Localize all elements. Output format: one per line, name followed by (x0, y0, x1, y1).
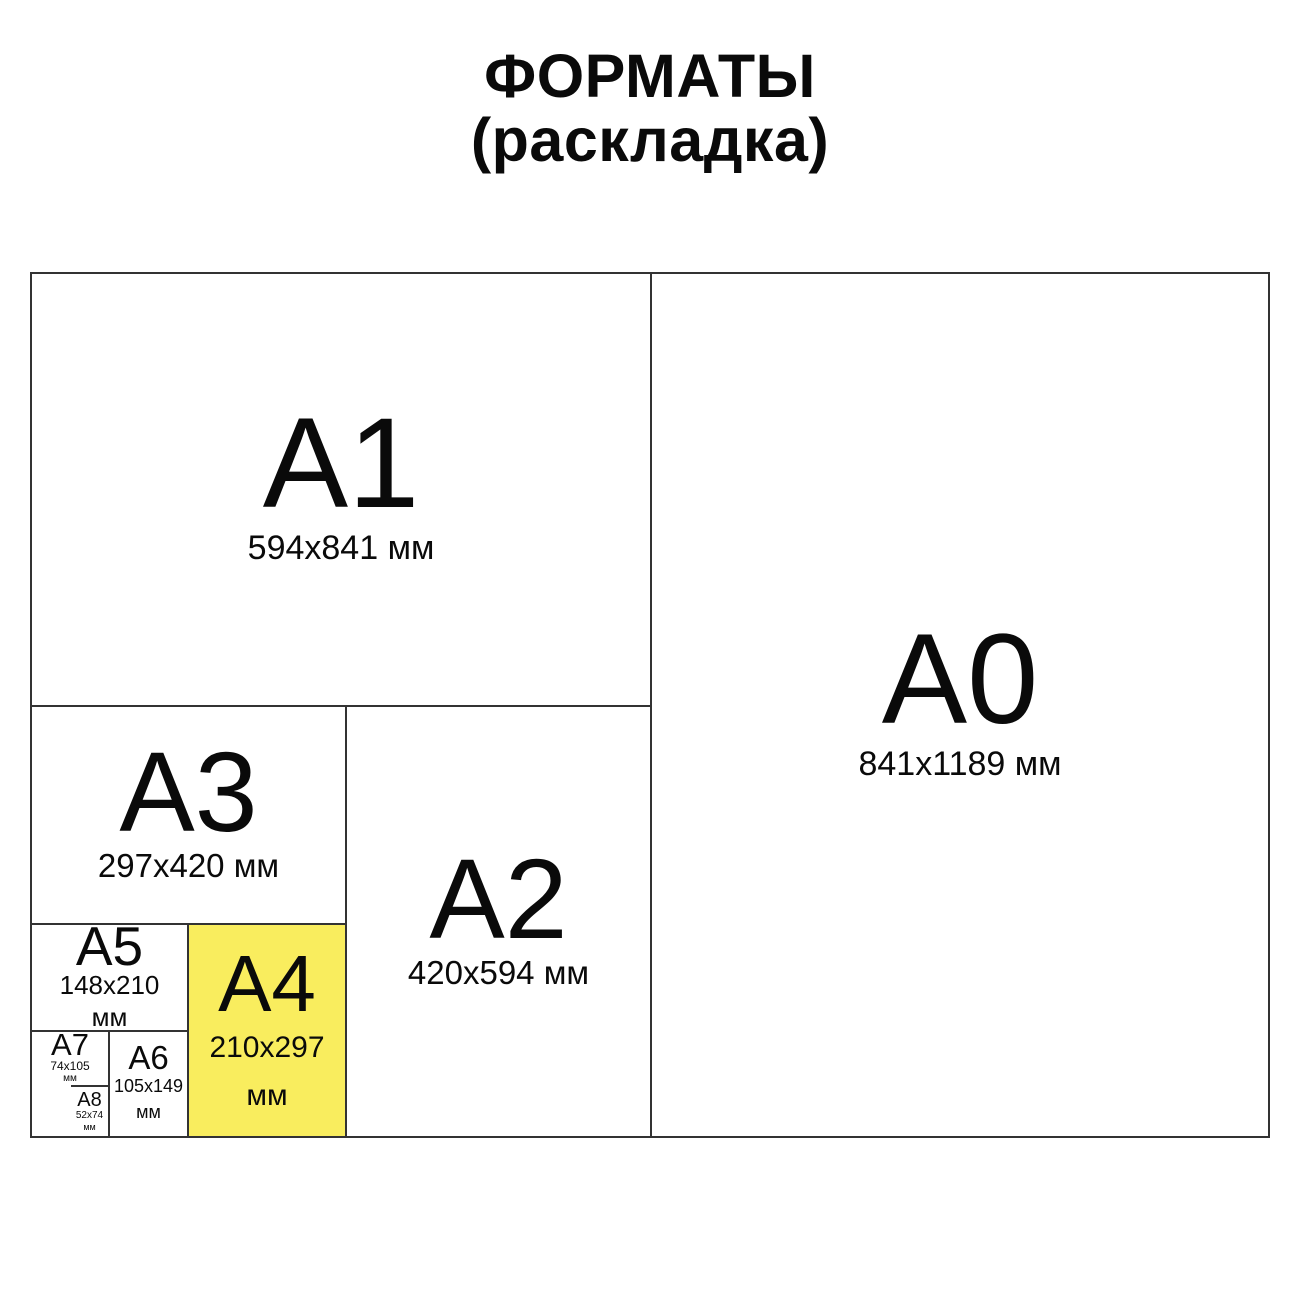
format-label-a8: A8 (77, 1092, 101, 1108)
format-label-a1: A1 (263, 410, 420, 519)
format-dimensions-unit-a7: мм (63, 1074, 77, 1084)
format-box-a3: A3 297x420 мм (30, 705, 347, 925)
format-dimensions-a0: 841x1189 мм (858, 744, 1061, 785)
page-title-line1: ФОРМАТЫ (0, 44, 1300, 108)
format-box-a0: A0 841x1189 мм (650, 272, 1270, 1138)
page-title-line2: (раскладка) (0, 108, 1300, 172)
format-box-a5: A5 148x210 мм (30, 923, 189, 1032)
format-label-a4: A4 (218, 950, 316, 1018)
format-dimensions-a8: 52x74 (76, 1111, 103, 1121)
format-dimensions-a7: 74x105 (50, 1060, 89, 1072)
format-label-a3: A3 (119, 744, 257, 840)
format-label-a7: A7 (51, 1033, 89, 1058)
format-dimensions-unit-a8: мм (83, 1123, 95, 1132)
format-dimensions-a2: 420x594 мм (408, 953, 589, 993)
format-box-a6: A6 105x149 мм (108, 1030, 189, 1138)
format-box-a4-highlighted: A4 210x297 мм (187, 923, 347, 1138)
format-dimensions-unit-a4: мм (246, 1079, 287, 1112)
format-label-a2: A2 (429, 851, 567, 947)
format-dimensions-a6: 105x149 (114, 1077, 183, 1097)
format-box-a2: A2 420x594 мм (345, 705, 652, 1138)
format-dimensions-unit-a5: мм (92, 1004, 128, 1031)
format-box-a8: A8 52x74 мм (69, 1085, 110, 1138)
format-box-a7: A7 74x105 мм (30, 1030, 110, 1087)
format-dimensions-a4: 210x297 (209, 1031, 324, 1064)
format-dimensions-a5: 148x210 (60, 972, 160, 999)
outer-border-filler (30, 1085, 71, 1138)
format-box-a1: A1 594x841 мм (30, 272, 652, 707)
format-dimensions-a1: 594x841 мм (248, 528, 435, 569)
paper-formats-page: ФОРМАТЫ (раскладка) A1 594x841 мм A0 841… (0, 0, 1300, 1300)
format-label-a5: A5 (76, 924, 143, 968)
format-label-a0: A0 (882, 626, 1039, 735)
format-dimensions-a3: 297x420 мм (98, 846, 279, 886)
paper-formats-diagram: A1 594x841 мм A0 841x1189 мм A3 297x420 … (30, 272, 1270, 1138)
format-dimensions-unit-a6: мм (136, 1103, 161, 1123)
format-label-a6: A6 (128, 1045, 168, 1071)
page-title: ФОРМАТЫ (раскладка) (0, 44, 1300, 172)
